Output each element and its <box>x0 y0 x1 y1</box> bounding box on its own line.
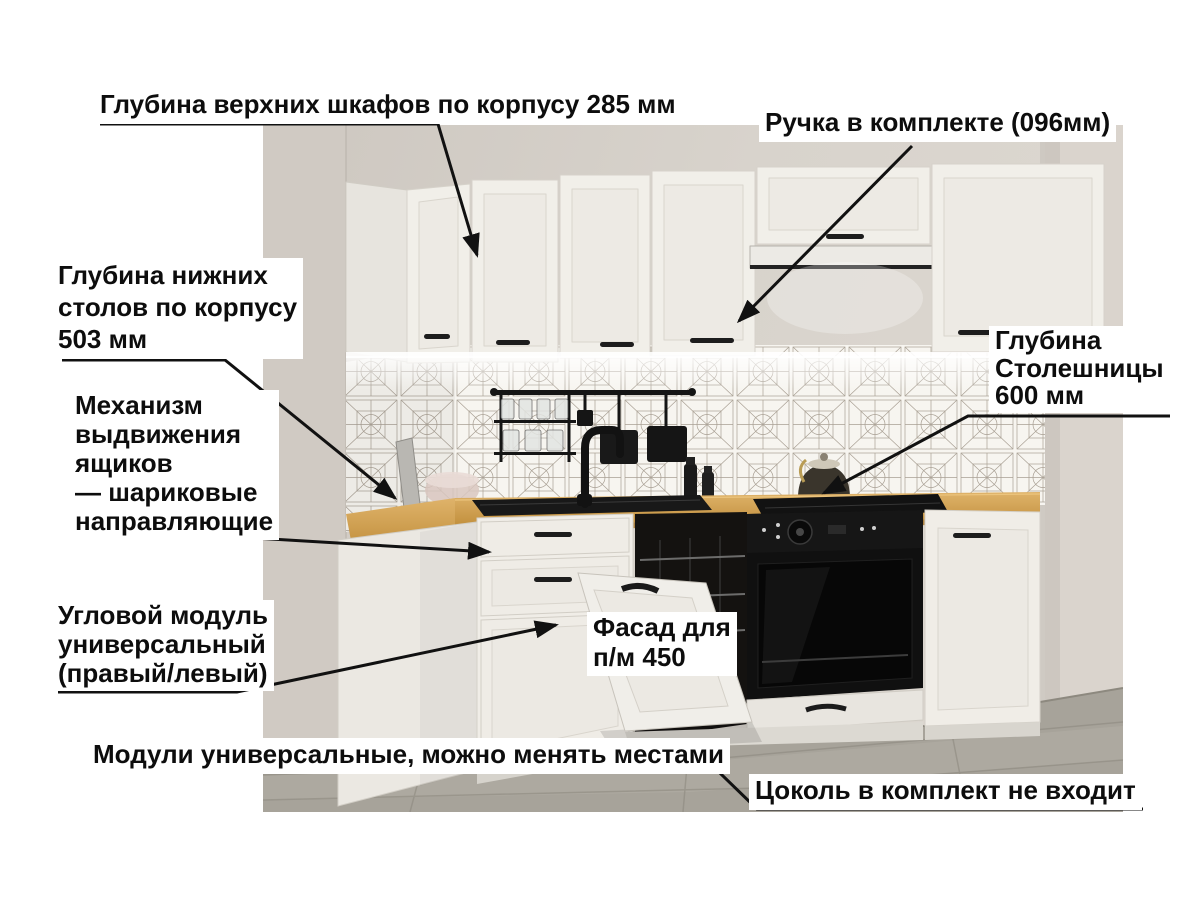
upper-door-4 <box>652 171 755 356</box>
door-handle <box>496 340 530 345</box>
upper-corner-door <box>407 184 470 363</box>
right-base-cabinet <box>925 510 1040 726</box>
label-corner-module: Угловой модуль универсальный (правый/лев… <box>52 600 274 691</box>
label-universal-modules: Модули универсальные, можно менять места… <box>87 738 730 774</box>
door-handle <box>424 334 450 339</box>
label-handle-included: Ручка в комплекте (096мм) <box>759 106 1116 142</box>
hanging-container <box>647 426 687 462</box>
oven <box>747 510 923 732</box>
label-plinth-not-included: Цоколь в комплект не входит <box>749 774 1142 810</box>
label-top-cabinet-depth: Глубина верхних шкафов по корпусу 285 мм <box>94 88 682 124</box>
door-handle <box>690 338 734 343</box>
label-lower-cabinet-depth: Глубина нижних столов по корпусу 503 мм <box>52 258 303 359</box>
hood-cabinet <box>757 167 930 244</box>
label-dishwasher-facade: Фасад для п/м 450 <box>587 612 737 676</box>
drawer-handle <box>534 577 572 582</box>
door-handle <box>600 342 634 347</box>
drawer-handle <box>534 532 572 537</box>
upper-door-2 <box>472 180 558 362</box>
door-handle <box>826 234 864 239</box>
upper-door-3 <box>560 175 650 358</box>
annotated-kitchen-page: Глубина верхних шкафов по корпусу 285 мм… <box>0 0 1200 900</box>
upper-door-5 <box>932 164 1104 352</box>
kitchen-photo <box>263 125 1123 812</box>
label-drawer-mechanism: Механизм выдвижения ящиков — шариковые н… <box>69 390 279 540</box>
label-countertop-depth: Глубина Столешницы 600 мм <box>989 326 1170 413</box>
door-handle <box>953 533 991 538</box>
